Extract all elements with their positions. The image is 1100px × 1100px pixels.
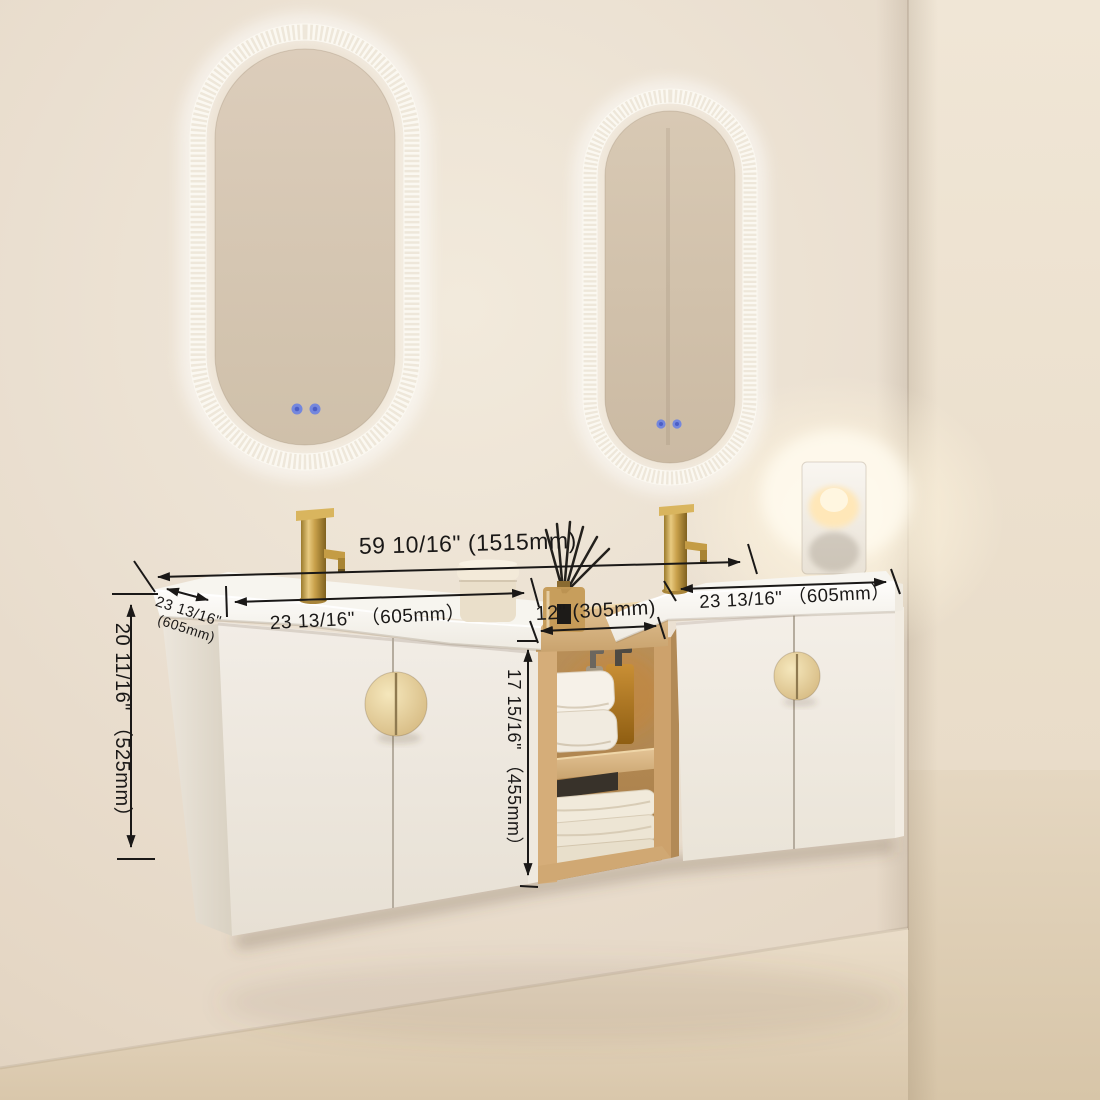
floor-soft-shadow (220, 962, 900, 1042)
product-photo-vanity-scene: 59 10/16" (1515mm) 23 13/16" （605mm） 12"… (0, 0, 1100, 1100)
counter-right-end (895, 582, 903, 612)
cabinet-left-doors (218, 622, 528, 936)
touch-button-core (295, 407, 300, 412)
cabinet-right-doors (676, 605, 895, 861)
touch-button-core (313, 407, 318, 412)
shelf-right-board (654, 637, 671, 860)
dim-tick (226, 586, 227, 617)
faucet-body (664, 512, 687, 591)
open-shelf-unit (538, 624, 679, 884)
dim-tick (520, 886, 538, 887)
mirror-glass (215, 49, 395, 445)
lamp-lower-shade (809, 532, 859, 572)
scene-canvas: 59 10/16" (1515mm) 23 13/16" （605mm） 12"… (0, 0, 1100, 1100)
jar-body (460, 576, 516, 622)
faucet-body (301, 516, 326, 601)
shelf-left-board (538, 643, 557, 884)
cabinet-left (218, 622, 538, 936)
touch-button-core (659, 422, 663, 426)
dim-height-label: 20 11/16" （525mm） (111, 623, 134, 827)
niche-left-reveal (528, 647, 538, 884)
lamp-bulb-glow (820, 488, 848, 512)
cabinet-right (676, 605, 904, 861)
touch-button-core (675, 422, 679, 426)
cabinet-right-end (895, 605, 904, 838)
dim-shelf-height-label: 17 15/16" （455mm） (504, 669, 524, 855)
wall-lamp (802, 462, 866, 574)
